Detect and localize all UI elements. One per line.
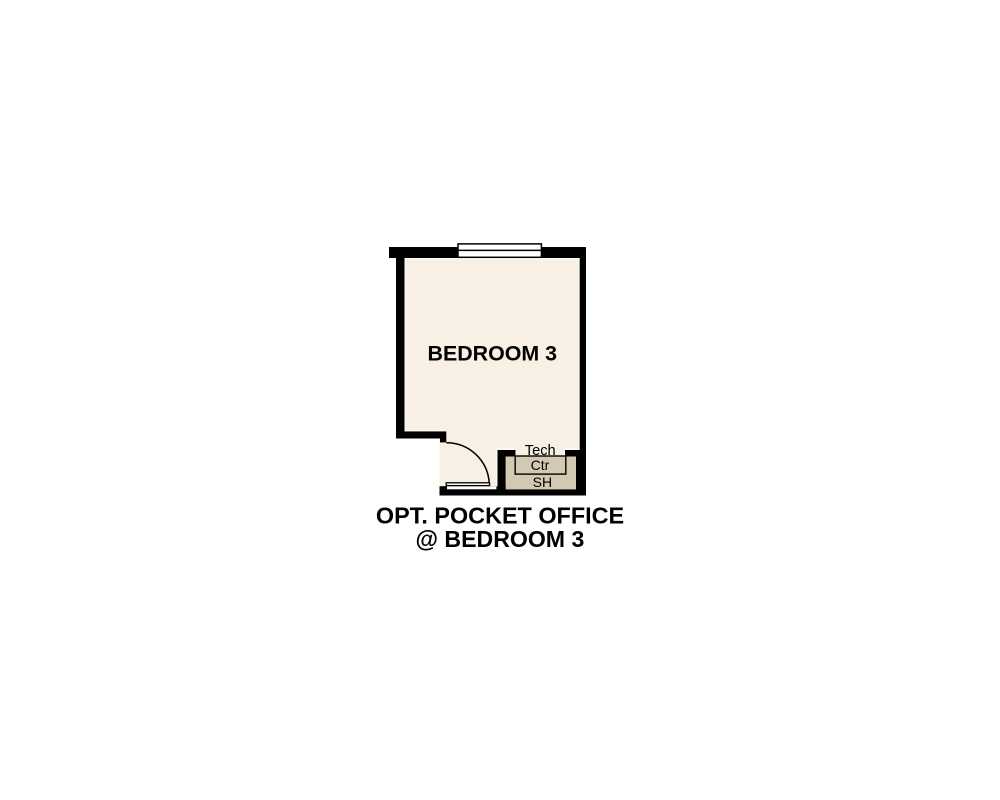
svg-text:OPT. POCKET OFFICE: OPT. POCKET OFFICE <box>376 502 624 528</box>
svg-text:SH: SH <box>533 474 552 490</box>
svg-text:@ BEDROOM 3: @ BEDROOM 3 <box>416 526 585 552</box>
svg-text:Ctr: Ctr <box>531 457 550 473</box>
svg-text:BEDROOM 3: BEDROOM 3 <box>428 342 558 366</box>
